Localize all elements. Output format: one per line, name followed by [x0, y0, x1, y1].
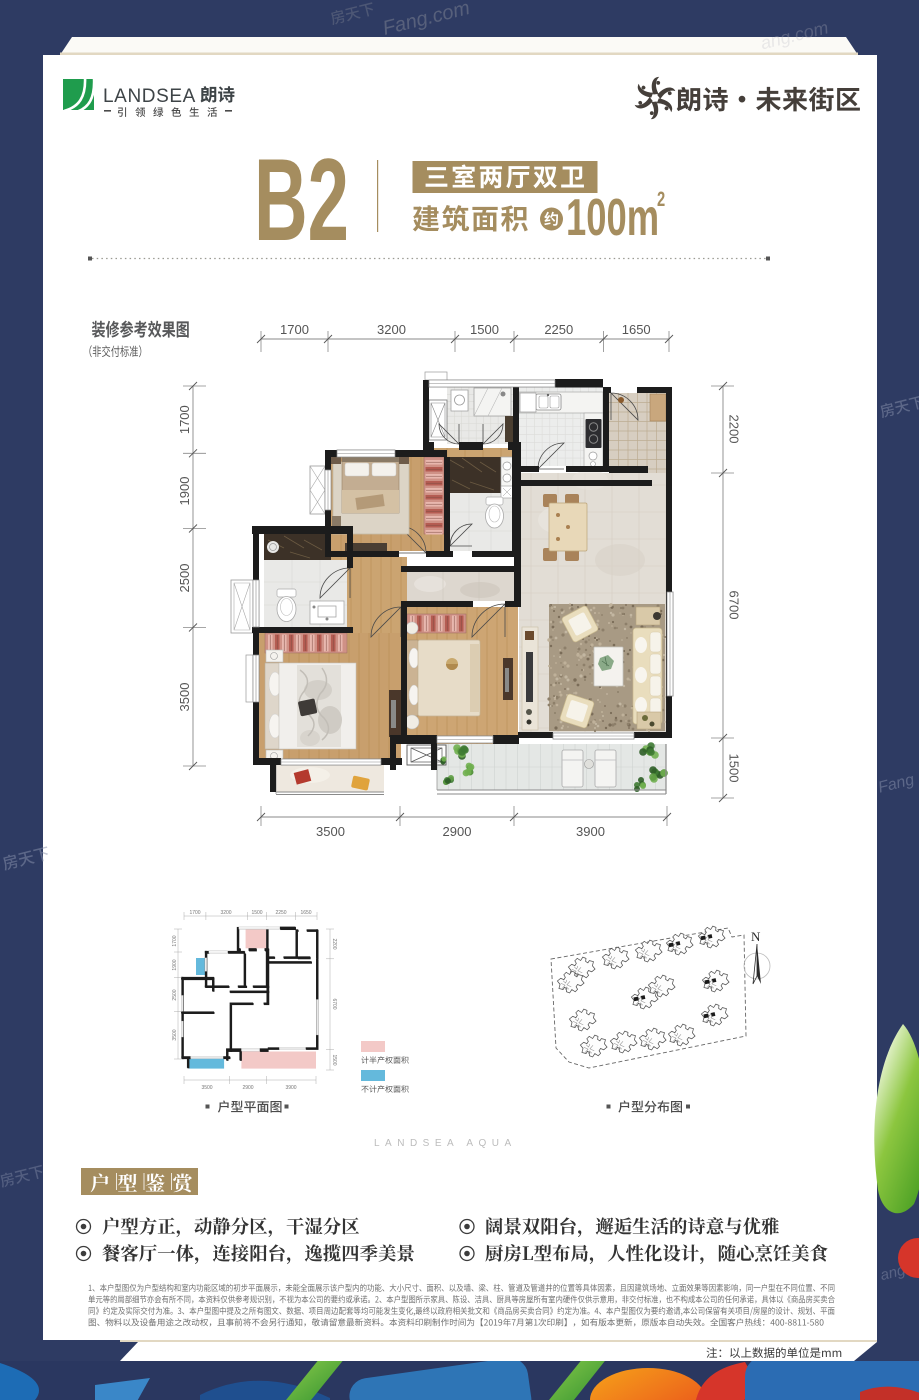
svg-text:1650: 1650 [300, 910, 311, 916]
svg-text:LANDSEA AQUA: LANDSEA AQUA [374, 1138, 517, 1149]
svg-text:1500: 1500 [251, 910, 262, 916]
svg-text:1500: 1500 [727, 754, 742, 783]
svg-text:1500: 1500 [470, 322, 499, 337]
svg-text:LANDSEA: LANDSEA [103, 86, 196, 107]
svg-text:3500: 3500 [177, 683, 192, 712]
svg-text:3200: 3200 [220, 910, 231, 916]
svg-text:3500: 3500 [172, 1029, 178, 1040]
svg-text:2500: 2500 [177, 564, 192, 593]
svg-text:2200: 2200 [331, 938, 337, 949]
svg-text:1500: 1500 [331, 1054, 337, 1065]
svg-text:2900: 2900 [443, 824, 472, 839]
svg-text:3500: 3500 [316, 824, 345, 839]
svg-text:6700: 6700 [331, 998, 337, 1009]
svg-text:100m: 100m [566, 187, 659, 246]
svg-text:1700: 1700 [172, 935, 178, 946]
svg-text:B2: B2 [254, 134, 349, 265]
svg-text:3500: 3500 [201, 1085, 212, 1091]
svg-text:2900: 2900 [242, 1085, 253, 1091]
svg-text:2200: 2200 [727, 415, 742, 444]
svg-text:1700: 1700 [189, 910, 200, 916]
svg-text:2250: 2250 [275, 910, 286, 916]
svg-text:3900: 3900 [285, 1085, 296, 1091]
svg-text:3900: 3900 [576, 824, 605, 839]
svg-text:2500: 2500 [172, 989, 178, 1000]
svg-text:1650: 1650 [622, 322, 651, 337]
svg-text:1900: 1900 [177, 477, 192, 506]
svg-text:3200: 3200 [377, 322, 406, 337]
svg-text:1700: 1700 [280, 322, 309, 337]
svg-text:2: 2 [657, 187, 665, 210]
svg-text:N: N [751, 929, 761, 944]
svg-text:1700: 1700 [177, 405, 192, 434]
svg-text:6700: 6700 [727, 591, 742, 620]
svg-text:1900: 1900 [172, 959, 178, 970]
svg-text:2250: 2250 [544, 322, 573, 337]
